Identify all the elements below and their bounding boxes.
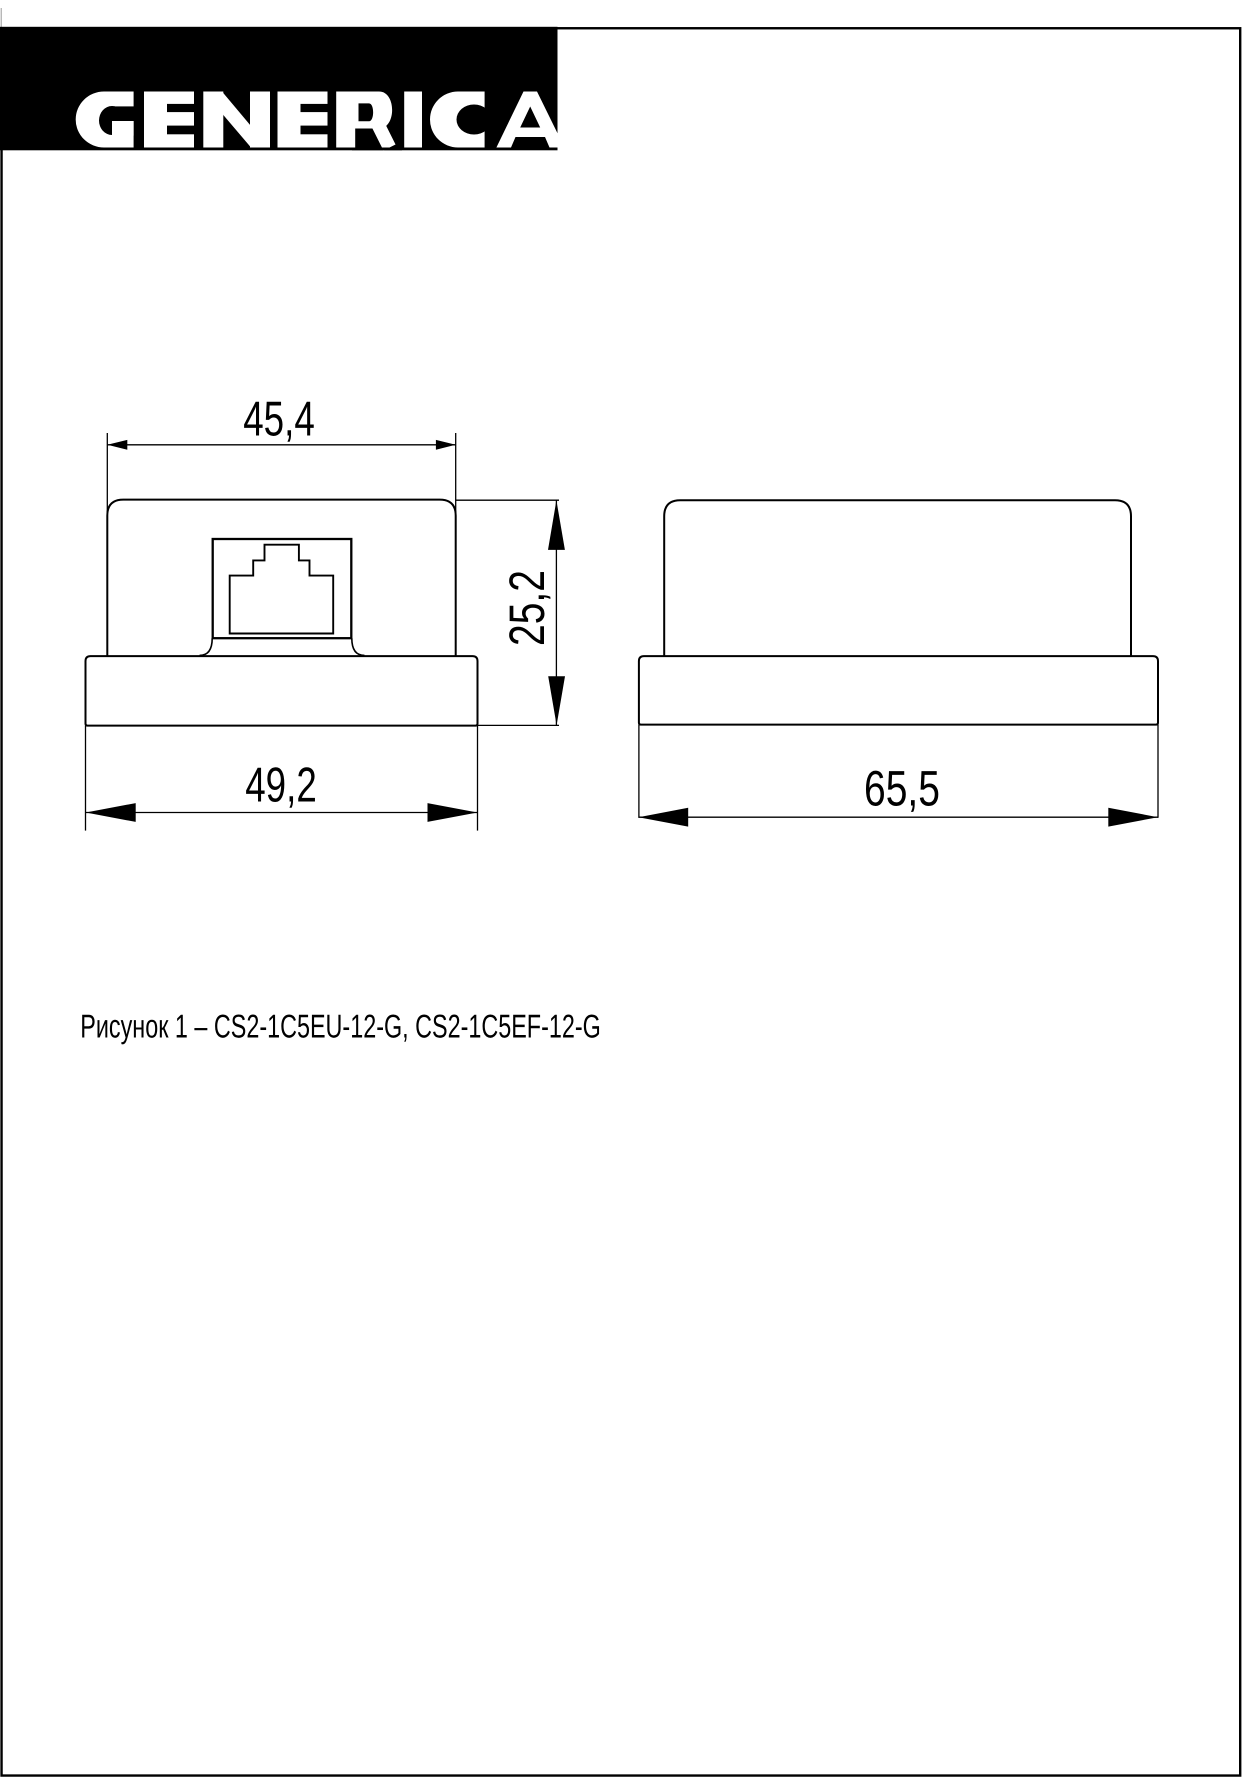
svg-text:65,5: 65,5	[864, 761, 940, 817]
svg-text:Рисунок 1 – CS2-1C5EU-12-G, CS: Рисунок 1 – CS2-1C5EU-12-G, CS2-1C5EF-12…	[80, 1007, 601, 1044]
svg-text:49,2: 49,2	[245, 759, 317, 813]
svg-text:25,2: 25,2	[499, 570, 555, 646]
svg-text:45,4: 45,4	[243, 393, 315, 447]
